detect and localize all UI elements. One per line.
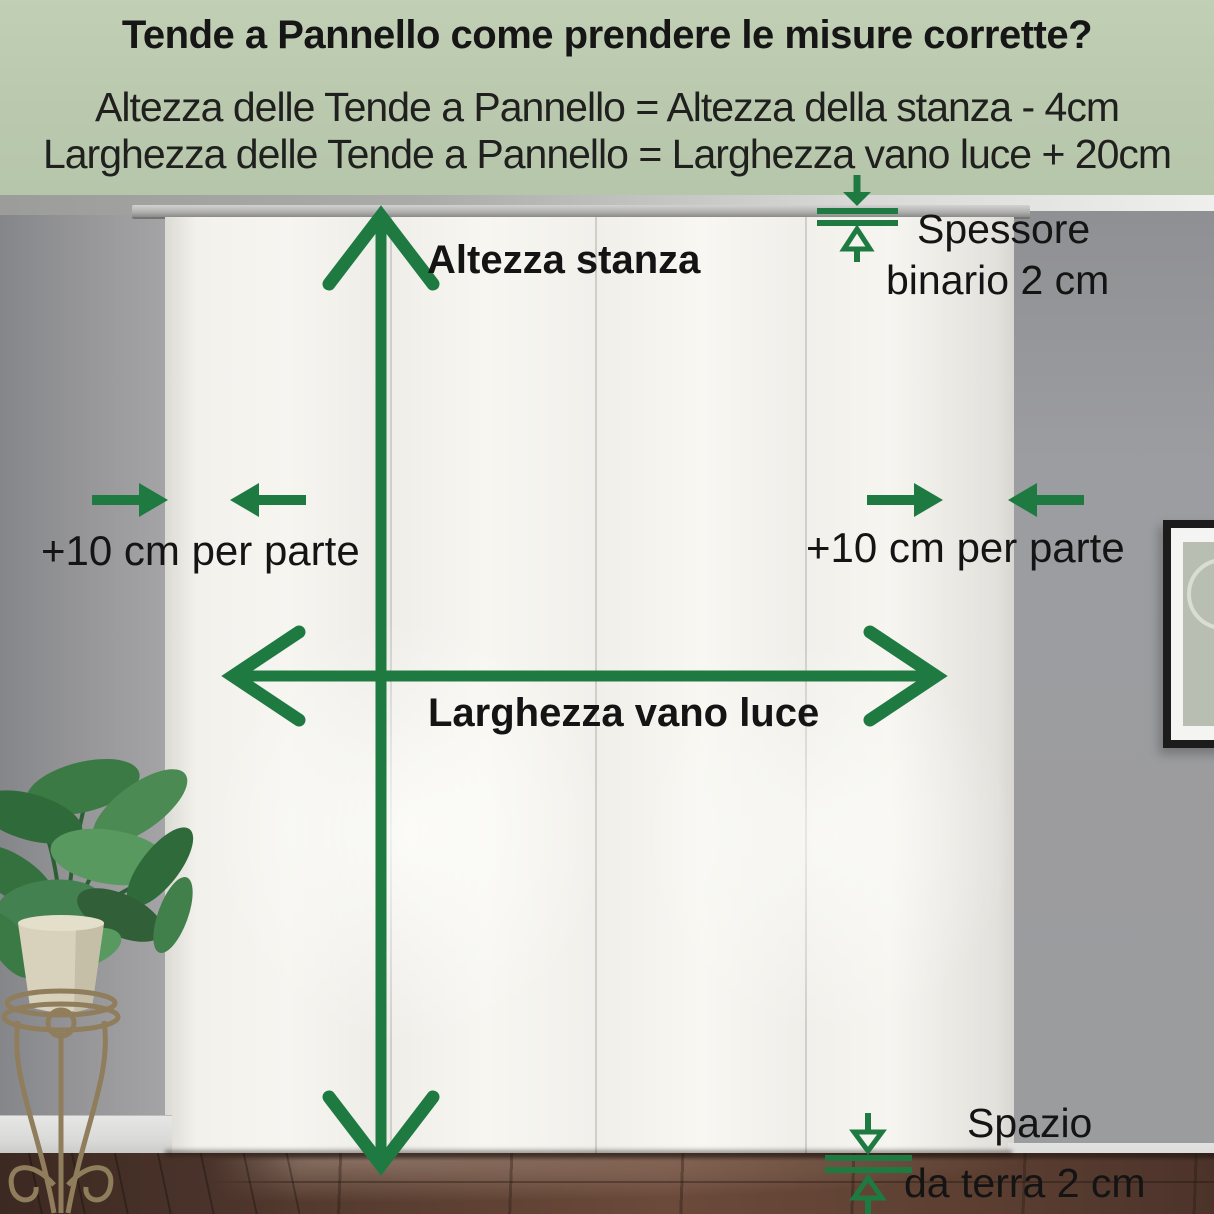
page-title: Tende a Pannello come prendere le misure… <box>0 13 1214 58</box>
rail-thickness-label-line2: binario 2 cm <box>886 257 1109 304</box>
plant-pot <box>18 915 104 1012</box>
opening-width-label: Larghezza vano luce <box>428 691 819 736</box>
room-height-label: Altezza stanza <box>427 238 700 283</box>
rail-thickness-label-line1: Spessore <box>917 206 1090 253</box>
floor-gap-label-line1: Spazio <box>967 1100 1092 1147</box>
infographic-page: Tende a Pannello come prendere le misure… <box>0 0 1214 1214</box>
wall-picture-frame <box>1163 520 1214 748</box>
potted-plant <box>0 745 224 1214</box>
width-formula-text: Larghezza delle Tende a Pannello = Largh… <box>0 131 1214 178</box>
panel-curtains <box>165 217 1012 1153</box>
header-banner: Tende a Pannello come prendere le misure… <box>0 0 1214 195</box>
floor-gap-label-line2: da terra 2 cm <box>904 1160 1146 1207</box>
curtain-hem-shadow <box>165 1150 1012 1156</box>
window-light-glow <box>210 617 610 1047</box>
height-formula-text: Altezza delle Tende a Pannello = Altezza… <box>0 84 1214 131</box>
picture-circle-motif <box>1187 558 1214 630</box>
picture-art <box>1183 542 1214 726</box>
side-margin-right-label: +10 cm per parte <box>806 524 1125 572</box>
plant-stand <box>4 991 118 1213</box>
side-margin-left-label: +10 cm per parte <box>41 527 360 575</box>
